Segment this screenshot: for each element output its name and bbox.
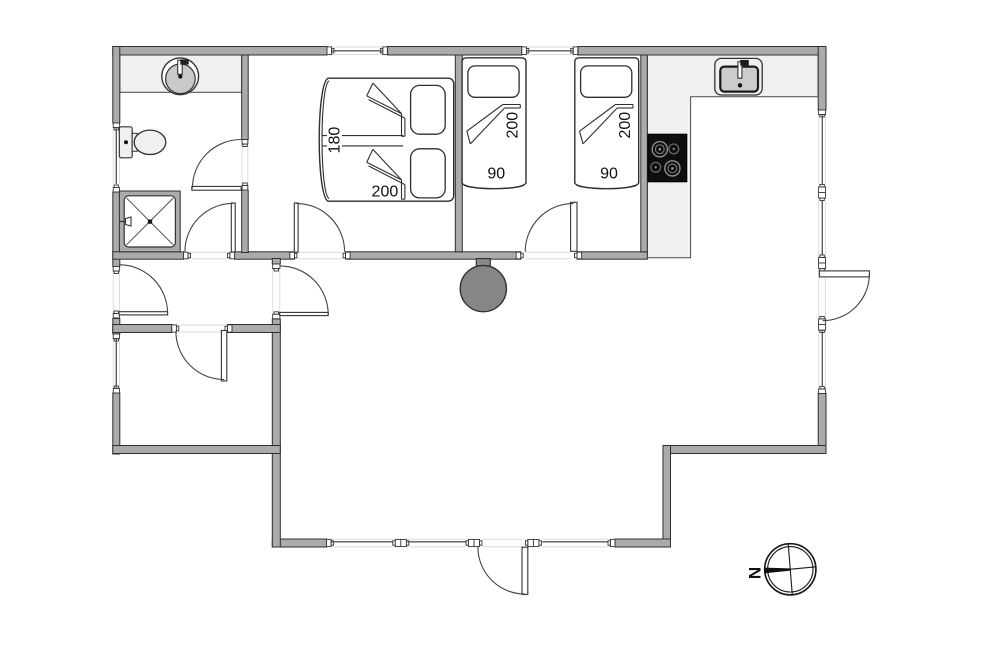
svg-text:180: 180: [327, 127, 344, 154]
svg-text:200: 200: [372, 184, 399, 201]
svg-text:200: 200: [504, 112, 521, 139]
svg-text:90: 90: [487, 166, 505, 183]
svg-text:N: N: [746, 567, 765, 579]
svg-text:200: 200: [617, 112, 634, 139]
svg-text:90: 90: [600, 166, 618, 183]
